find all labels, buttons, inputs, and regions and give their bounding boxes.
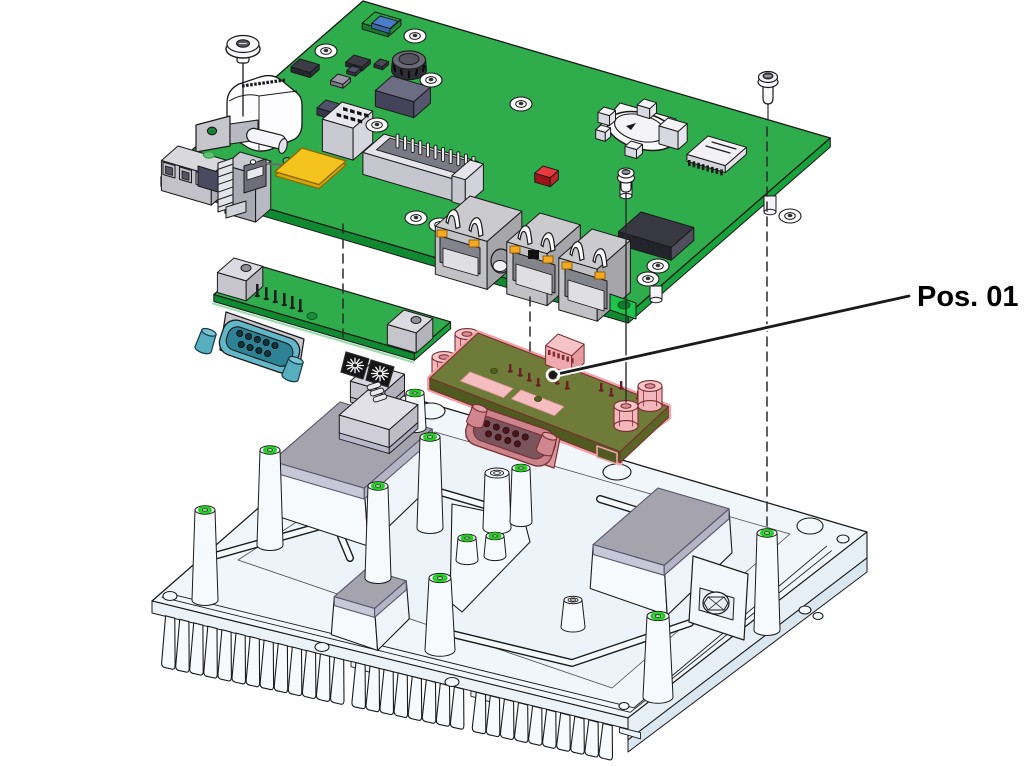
svg-text:Pos. 01: Pos. 01 [917,281,1019,313]
